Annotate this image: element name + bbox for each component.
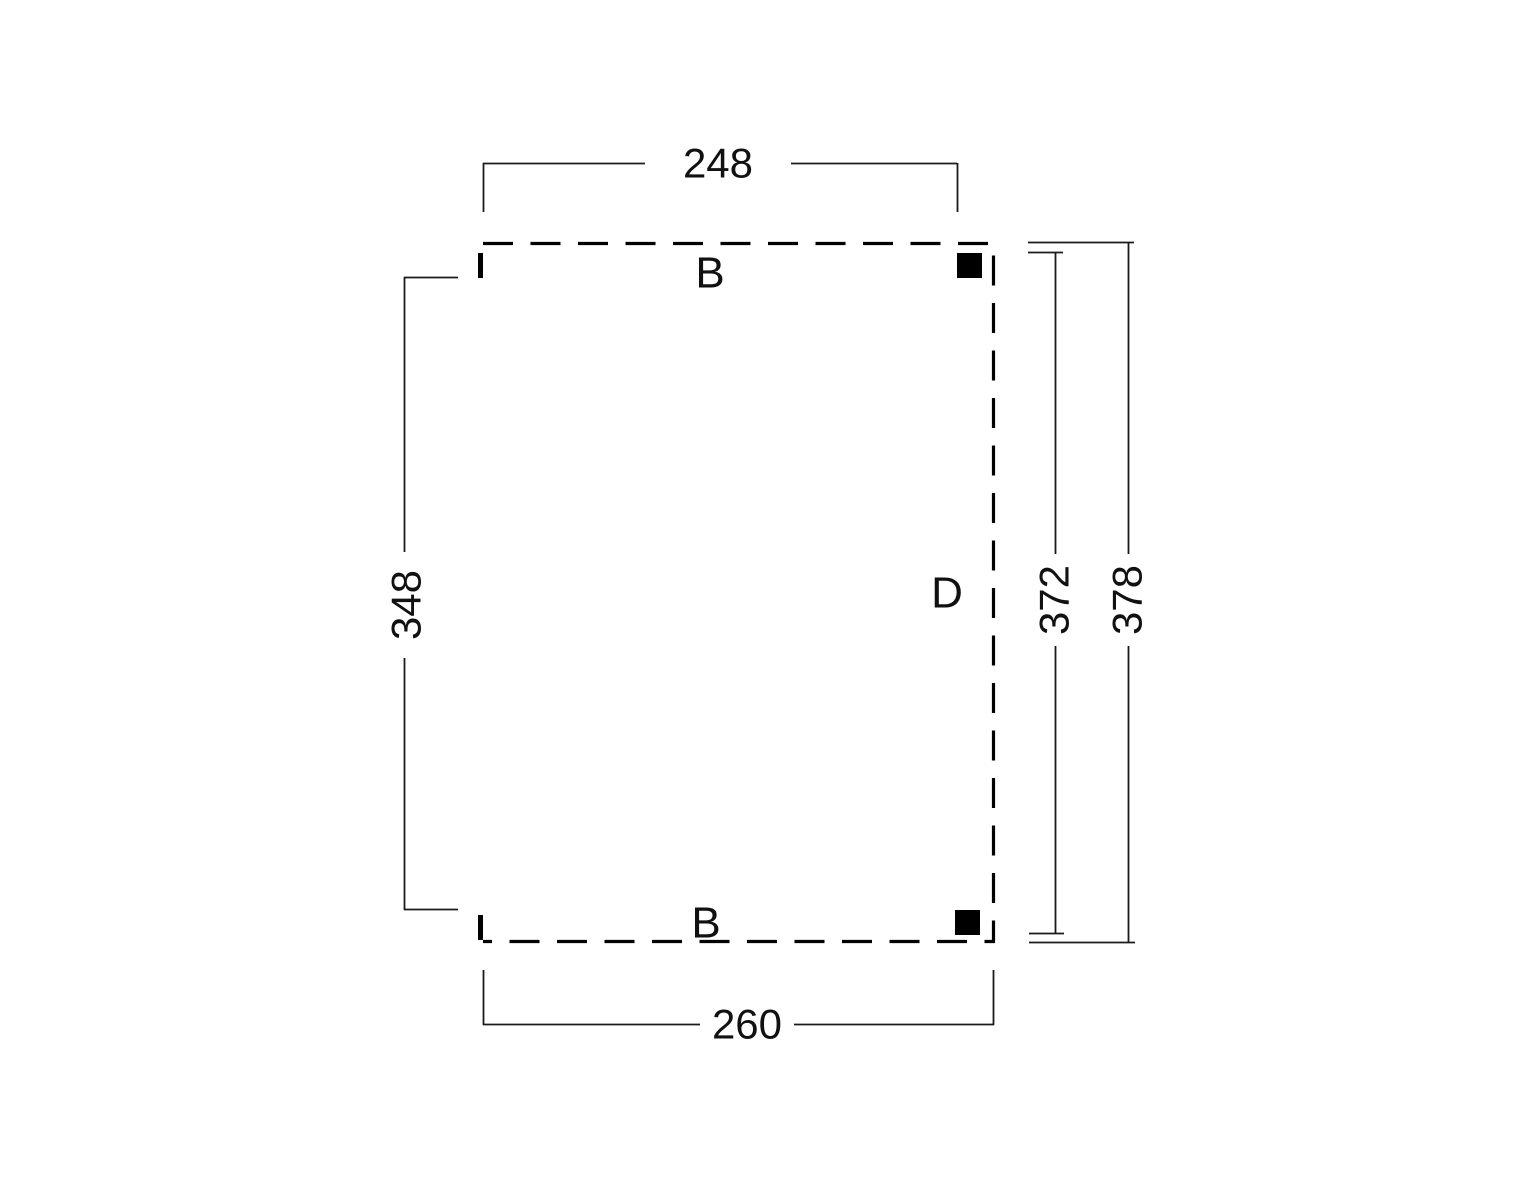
dim-top-value: 248 (683, 140, 753, 187)
dim-bottom-value: 260 (712, 1001, 782, 1048)
post-marker-bottom-right (955, 910, 980, 935)
plan-outline-dashed (483, 244, 994, 942)
dimension-top: 248 (483, 140, 958, 212)
corner-tick-bottom-left (478, 915, 483, 940)
post-marker-top-right (957, 253, 982, 278)
dim-right-outer-value: 378 (1104, 565, 1151, 635)
label-bottom-edge: B (691, 898, 720, 947)
dimension-right-inner: 372 (1028, 253, 1078, 935)
dim-right-inner-value: 372 (1031, 565, 1078, 635)
dimension-left: 348 (383, 277, 458, 910)
dimension-bottom: 260 (483, 970, 994, 1048)
label-right-edge: D (931, 568, 963, 617)
dimension-drawing: 248 260 348 372 (0, 0, 1530, 1188)
dim-left-value: 348 (383, 570, 430, 640)
corner-tick-top-left (478, 253, 483, 278)
drawing-canvas: 248 260 348 372 (0, 0, 1530, 1188)
label-top-edge: B (695, 248, 724, 297)
